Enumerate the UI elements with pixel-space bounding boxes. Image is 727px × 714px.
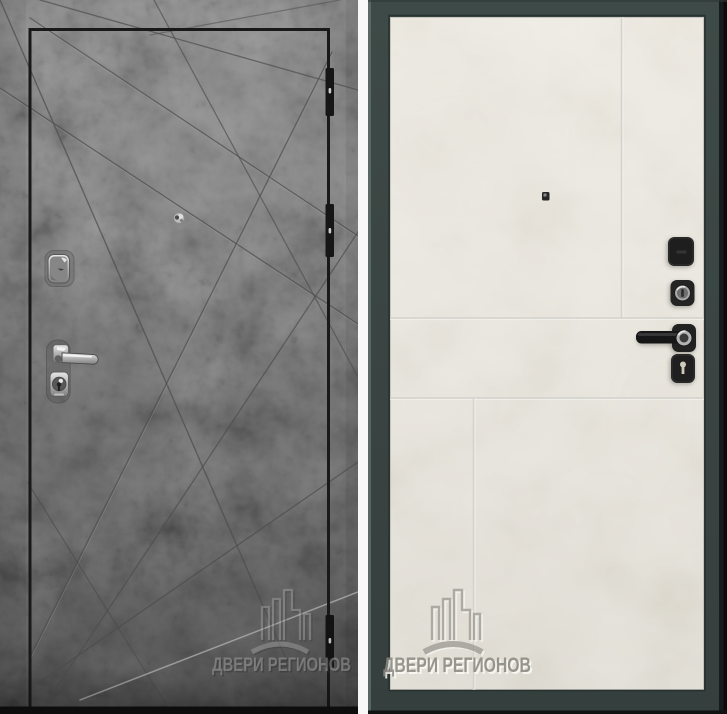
svg-text:ДВЕРИ РЕГИОНОВ: ДВЕРИ РЕГИОНОВ — [383, 653, 531, 677]
